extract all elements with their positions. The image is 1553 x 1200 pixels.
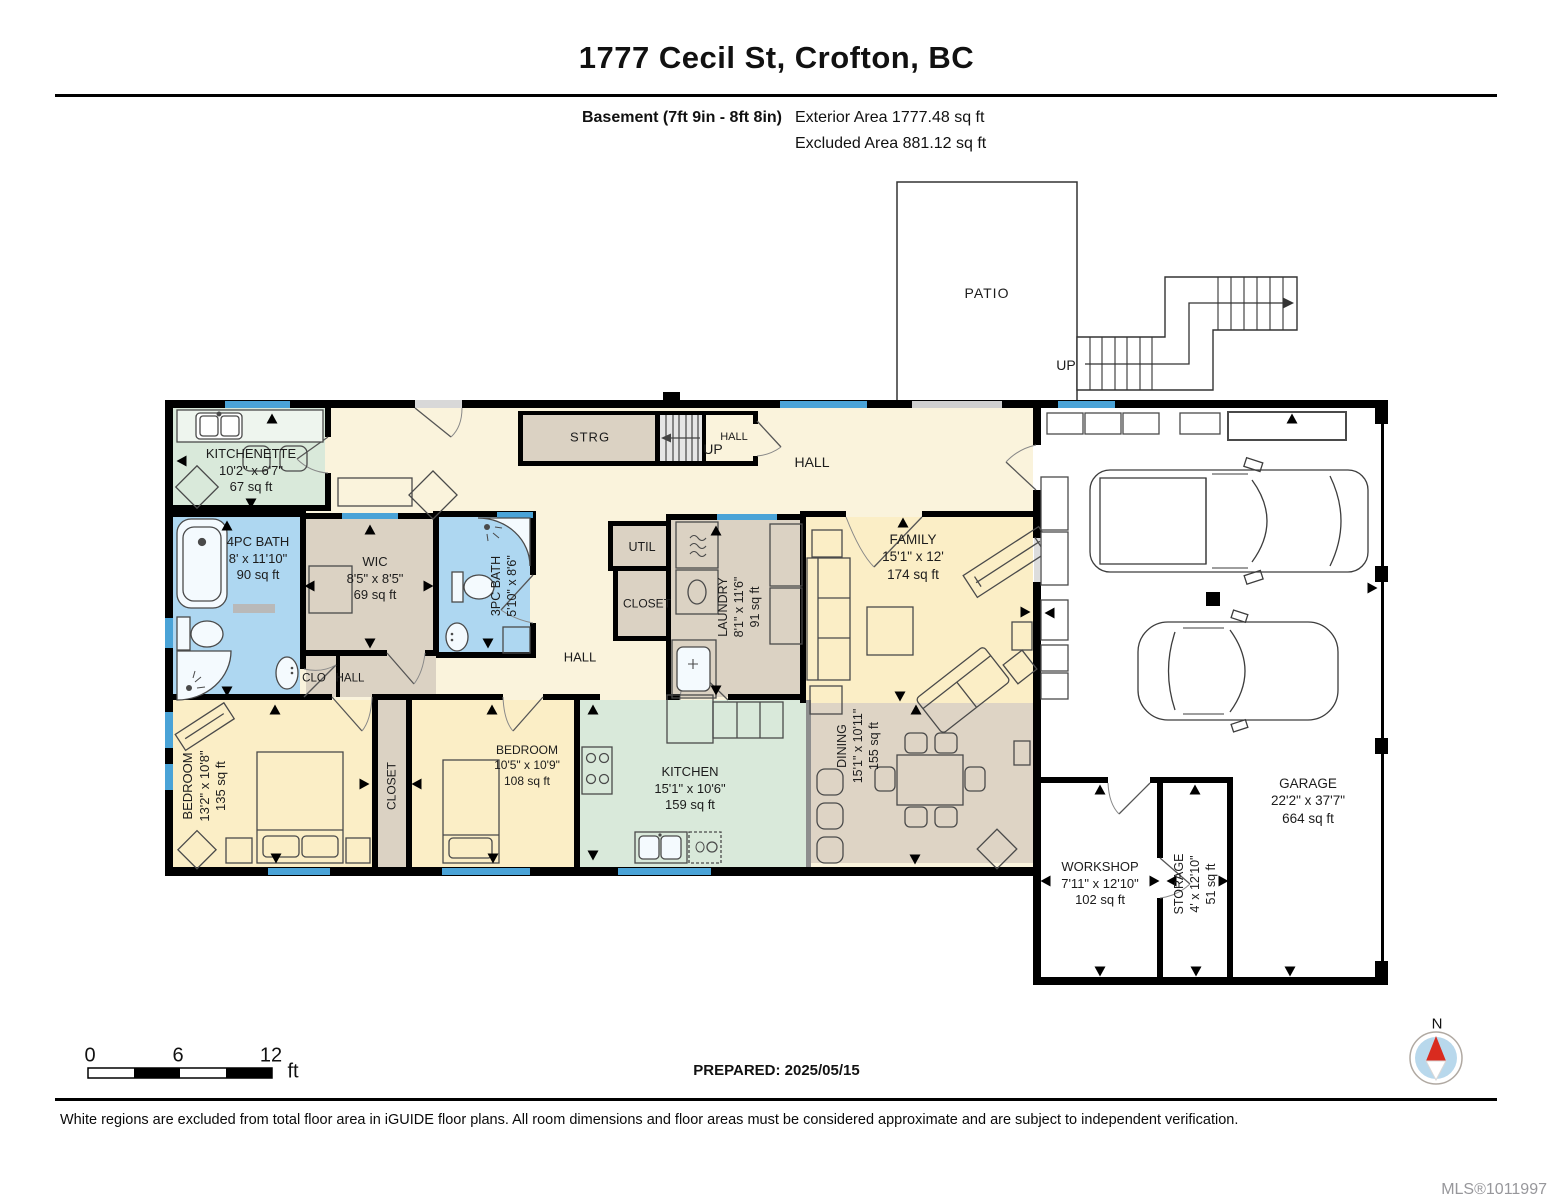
room-label-4pc-bath: 4PC BATH 8' x 11'10" 90 sq ft xyxy=(227,534,290,584)
mls-number: MLS®1011997 xyxy=(1441,1181,1547,1199)
sink-icon xyxy=(446,623,468,651)
bathtub-icon xyxy=(177,519,227,608)
bathmat-icon xyxy=(233,604,275,613)
room-label-storage: STORAGE 4' x 12'10" 51 sq ft xyxy=(1171,854,1219,915)
room-label-laundry: LAUNDRY 8'1" x 11'6" 91 sq ft xyxy=(715,577,763,638)
exterior-stairs xyxy=(1077,277,1297,390)
hall-bench-icon xyxy=(338,478,412,506)
room-label-family: FAMILY 15'1" x 12' 174 sq ft xyxy=(882,531,944,583)
room-label-wic: WIC 8'5" x 8'5" 69 sq ft xyxy=(347,554,404,604)
room-label-bedroom-right: BEDROOM 10'5" x 10'9" 108 sq ft xyxy=(494,743,560,789)
room-label-hall-mid: HALL xyxy=(564,650,597,667)
floor-plan-page: 1777 Cecil St, Crofton, BC Basement (7ft… xyxy=(0,0,1553,1200)
room-label-closet-mid: CLOSET xyxy=(623,596,671,611)
page-title: 1777 Cecil St, Crofton, BC xyxy=(0,40,1553,76)
room-label-garage: GARAGE 22'2" x 37'7" 664 sq ft xyxy=(1271,775,1345,827)
room-label-hall-top: HALL xyxy=(794,454,829,472)
room-label-hall-by-stairs: HALL xyxy=(720,430,748,444)
garage-shelves-icon xyxy=(1041,412,1346,699)
footer-divider xyxy=(55,1098,1497,1101)
room-label-hall-lower: HALL xyxy=(336,672,365,687)
sink-icon xyxy=(276,657,298,689)
room-label-dining: DINING 15'1" x 10'11" 155 sq ft xyxy=(834,709,882,784)
room-label-closet-bottom: CLOSET xyxy=(384,762,399,810)
floor-label: Basement (7ft 9in - 8ft 8in) xyxy=(582,109,782,127)
stairs-up-label-exterior: UP xyxy=(1056,357,1075,375)
excluded-area: Excluded Area 881.12 sq ft xyxy=(795,135,986,153)
room-label-kitchenette: KITCHENETTE 10'2" x 6'7" 67 sq ft xyxy=(206,446,296,496)
room-label-util: UTIL xyxy=(628,539,655,555)
room-label-bedroom-left: BEDROOM 13'2" x 10'8" 135 sq ft xyxy=(180,750,230,821)
room-label-workshop: WORKSHOP 7'11" x 12'10" 102 sq ft xyxy=(1061,859,1139,909)
kitchenette-counter-icon xyxy=(177,410,323,442)
header-divider xyxy=(55,94,1497,97)
truck-icon xyxy=(1090,458,1368,585)
room-label-kitchen: KITCHEN 15'1" x 10'6" 159 sq ft xyxy=(654,764,725,814)
garage-post xyxy=(1206,592,1220,606)
prepared-date: PREPARED: 2025/05/15 xyxy=(0,1062,1553,1079)
room-label-3pc-bath: 3PC BATH 5'10" x 8'6" xyxy=(488,555,520,617)
kitchen-dining-half-wall xyxy=(806,700,811,867)
exterior-area: Exterior Area 1777.48 sq ft xyxy=(795,109,984,127)
car-icon xyxy=(1138,610,1338,732)
disclaimer-text: White regions are excluded from total fl… xyxy=(60,1112,1238,1128)
room-label-strg: STRG xyxy=(570,430,610,447)
compass-north-label: N xyxy=(1432,1016,1443,1033)
room-label-clo: CLO xyxy=(302,672,326,687)
floor-plan-svg xyxy=(0,0,1553,1200)
room-label-patio: PATIO xyxy=(965,285,1010,303)
